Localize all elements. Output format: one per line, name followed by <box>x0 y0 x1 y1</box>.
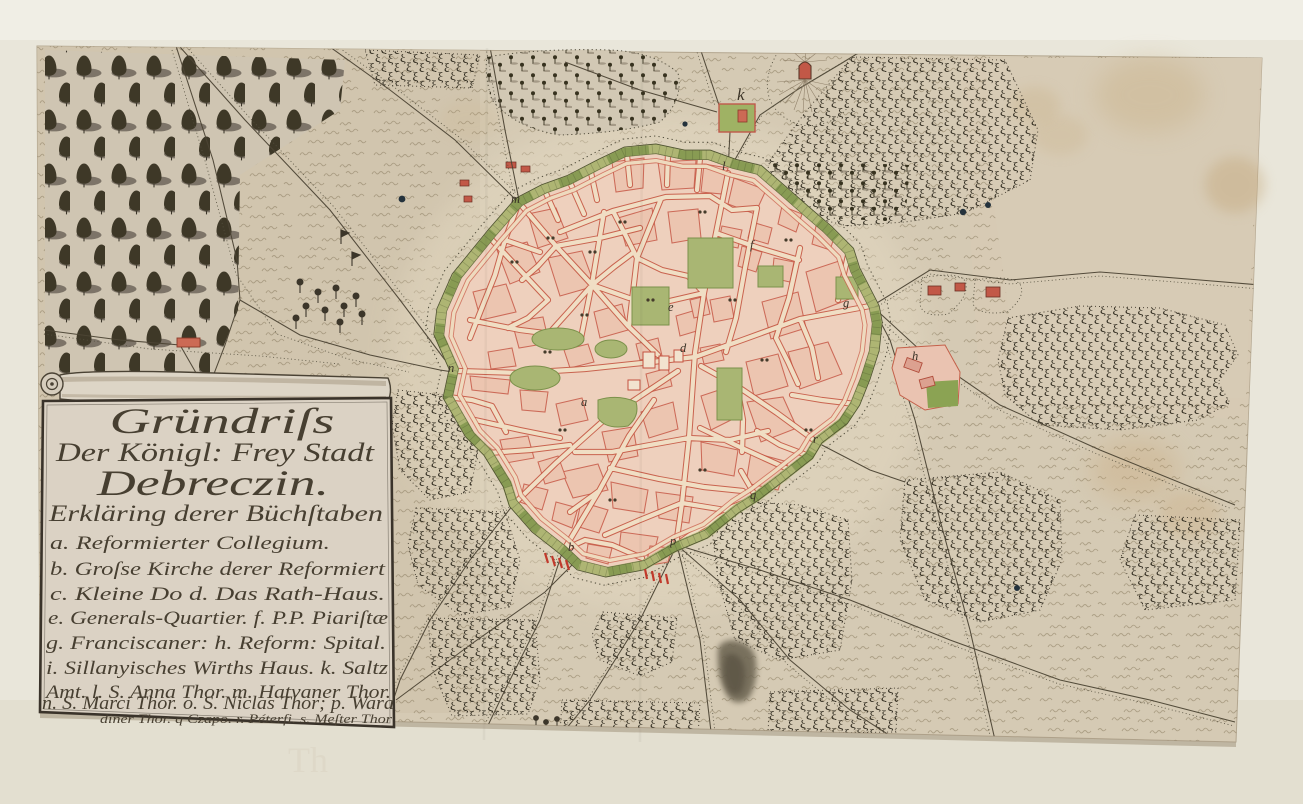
svg-text:q: q <box>750 488 756 502</box>
svg-text:l: l <box>722 159 726 173</box>
svg-text:g. Franciscaner: h. Reform:: g. Franciscaner: h. Reform: Spital. <box>46 634 386 654</box>
svg-text:diner Thor. q Czapo. r. Péterf: diner Thor. q Czapo. r. Péterfi. s. Meſt… <box>100 711 393 726</box>
svg-text:i. Sillanyisches Wirths Haus.: i. Sillanyisches Wirths Haus. k. Saltz <box>46 659 388 679</box>
svg-text:a: a <box>581 395 587 409</box>
svg-text:m: m <box>511 192 520 206</box>
svg-text:e: e <box>668 300 674 314</box>
svg-text:b: b <box>568 540 574 554</box>
svg-text:p: p <box>669 534 676 548</box>
svg-text:Gründriſs: Gründriſs <box>110 401 335 441</box>
svg-text:h: h <box>912 349 918 363</box>
svg-text:g: g <box>843 296 849 310</box>
svg-text:d: d <box>680 341 687 355</box>
svg-text:n: n <box>448 361 454 375</box>
svg-text:c. Kleine Do d. Das Rath-Hau: c. Kleine Do d. Das Rath-Haus. <box>50 585 385 605</box>
svg-text:r: r <box>813 432 818 446</box>
svg-text:Debreczin.: Debreczin. <box>96 463 329 503</box>
svg-text:Erkläring derer Büchſtaben: Erkläring derer Büchſtaben <box>48 501 383 526</box>
svg-text:e. Generals-Quartier. f. P.P.: e. Generals-Quartier. f. P.P. Piariſtæ <box>48 609 388 629</box>
svg-text:Th: Th <box>288 740 328 780</box>
svg-text:b. Groſse Kirche derer Reformi: b. Groſse Kirche derer Reformiert <box>50 560 386 580</box>
svg-text:a. Reformierter Collegium.: a. Reformierter Collegium. <box>50 534 330 554</box>
svg-text:k: k <box>737 85 745 104</box>
